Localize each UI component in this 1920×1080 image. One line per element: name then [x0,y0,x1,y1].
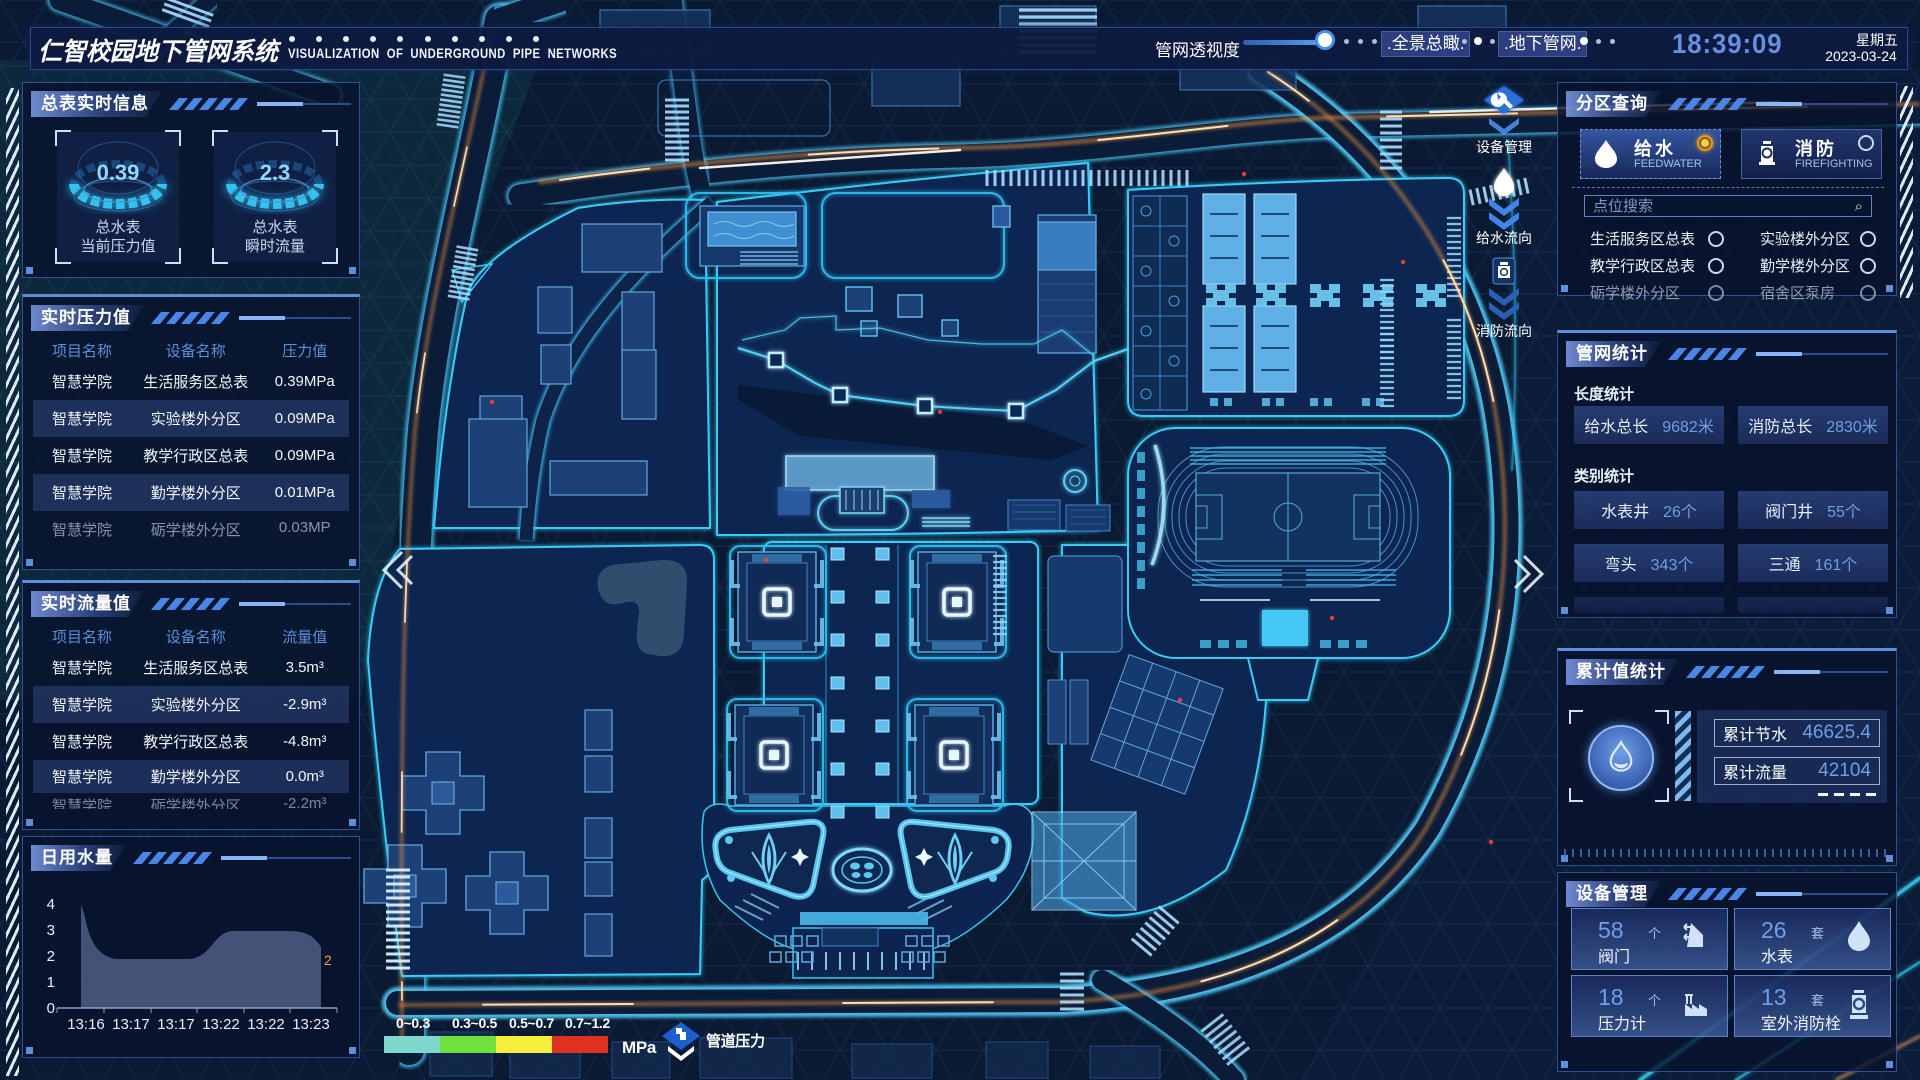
svg-text:1: 1 [47,974,55,991]
svg-text:2: 2 [47,948,55,965]
svg-text:0.39: 0.39 [97,160,140,185]
svg-text:13:16: 13:16 [67,1016,105,1033]
svg-text:4: 4 [47,896,55,913]
svg-text:13:22: 13:22 [247,1016,285,1033]
svg-text:设备管理: 设备管理 [1476,139,1532,155]
svg-text:0: 0 [47,1000,55,1017]
svg-text:2.3: 2.3 [260,160,291,185]
svg-text:13:17: 13:17 [157,1016,195,1033]
svg-text:13:22: 13:22 [202,1016,240,1033]
svg-text:3: 3 [47,922,55,939]
svg-text:给水流向: 给水流向 [1476,230,1532,246]
svg-text:13:17: 13:17 [112,1016,150,1033]
svg-text:2: 2 [324,952,332,968]
svg-text:13:23: 13:23 [292,1016,330,1033]
svg-text:消防流向: 消防流向 [1476,323,1532,339]
